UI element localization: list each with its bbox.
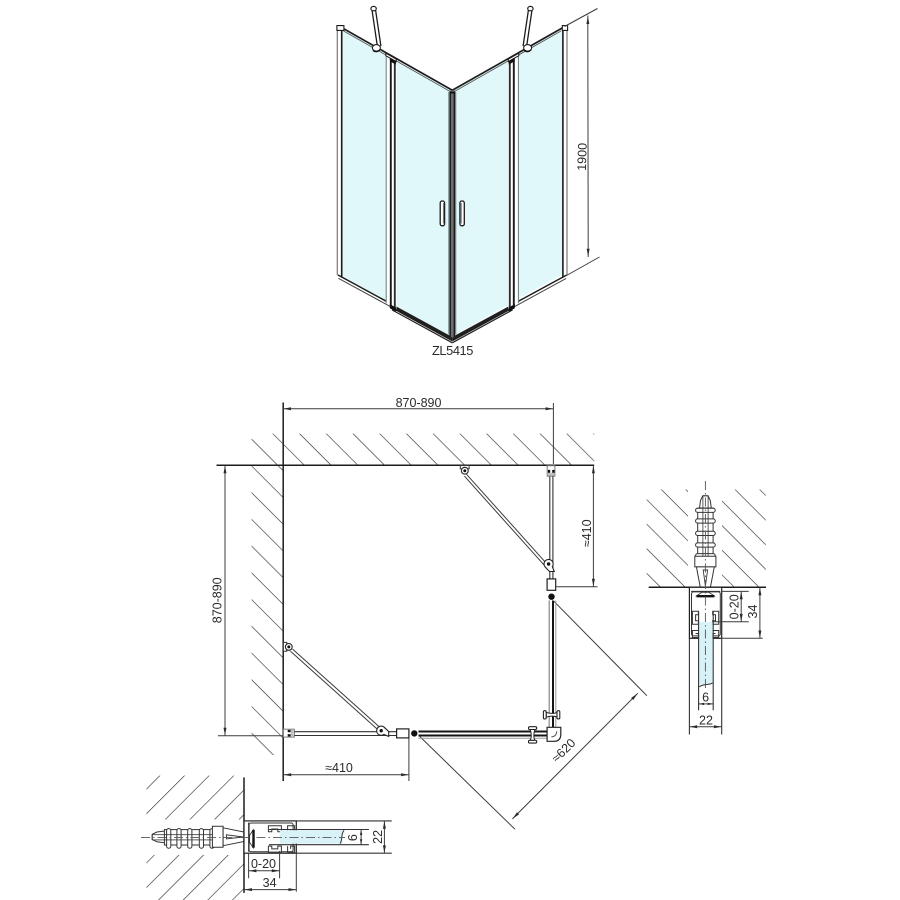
svg-text:≈410: ≈410: [580, 519, 594, 547]
svg-text:22: 22: [371, 830, 385, 844]
svg-text:22: 22: [699, 713, 713, 727]
svg-text:1900: 1900: [575, 143, 590, 171]
svg-text:870-890: 870-890: [396, 396, 442, 410]
svg-text:6: 6: [346, 834, 360, 841]
svg-text:6: 6: [702, 691, 709, 705]
svg-text:34: 34: [746, 605, 760, 619]
svg-text:ZL5415: ZL5415: [432, 343, 473, 358]
svg-text:0-20: 0-20: [251, 857, 276, 871]
svg-text:0-20: 0-20: [727, 594, 741, 619]
svg-text:≈410: ≈410: [325, 761, 353, 775]
svg-text:870-890: 870-890: [211, 577, 225, 623]
svg-text:34: 34: [263, 876, 277, 890]
